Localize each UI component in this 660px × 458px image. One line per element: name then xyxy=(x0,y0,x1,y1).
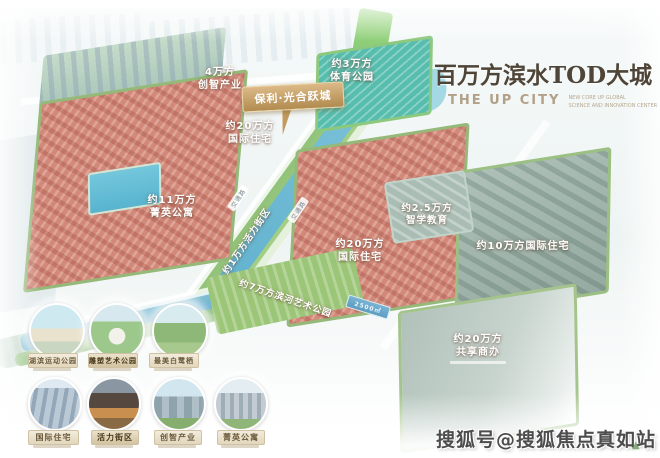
thumbnail-retail-street-render xyxy=(87,377,141,431)
label-line: 共享商办 xyxy=(450,346,506,359)
thumbnail-english-caption xyxy=(221,445,259,448)
thumbnail-label: 最美白鹭栖 xyxy=(149,353,199,368)
shared-office-english-caption xyxy=(450,361,506,364)
label-line: 约20万方 xyxy=(226,120,275,133)
thumbnail-english-caption xyxy=(33,445,71,448)
project-name-banner: 保利·光合跃城 xyxy=(241,81,344,112)
tagline-line: NEW CORE UP GLOBAL xyxy=(568,95,657,103)
thumbnail-label: 雕塑艺术公园 xyxy=(88,353,138,368)
tagline: NEW CORE UP GLOBAL SCIENCE AND INNOVATIO… xyxy=(568,93,657,110)
promo-masterplan-image: 4万方 创智产业 约3万方 体育公园 约20万方 国际住宅 约11万方 菁英公寓… xyxy=(0,0,660,458)
label-education: 约2.5万方 智学教育 xyxy=(401,203,452,228)
thumbnail-sculpture-park-photo xyxy=(89,303,145,359)
label-shared-office: 约20万方 共享商办 xyxy=(450,333,506,364)
thumbnail-apartment-render xyxy=(214,377,268,431)
label-innovation-industry: 4万方 创智产业 xyxy=(198,66,242,92)
label-line: 4万方 xyxy=(198,66,242,79)
label-elite-apartments: 约11万方 菁英公寓 xyxy=(148,194,197,220)
label-line: 约20万方 xyxy=(450,333,506,346)
label-line: 菁英公寓 xyxy=(148,207,197,220)
label-international-residence-center: 约20万方 国际住宅 xyxy=(336,238,385,264)
thumbnail-label: 创智产业 xyxy=(154,430,202,445)
thumbnail-industry-towers-render xyxy=(152,377,206,431)
label-line: 约3万方 xyxy=(330,58,374,71)
thumbnail-english-caption xyxy=(154,368,192,371)
label-sports-park: 约3万方 体育公园 xyxy=(330,58,374,84)
label-international-residence-east: 约10万方国际住宅 xyxy=(477,240,570,253)
thumbnail-label: 湖滨运动公园 xyxy=(28,353,78,368)
label-line: 国际住宅 xyxy=(226,133,275,146)
label-line: 约20万方 xyxy=(336,238,385,251)
thumbnail-label: 国际住宅 xyxy=(28,430,79,445)
main-title: 百万方滨水TOD大城 xyxy=(434,56,658,90)
label-line: 约2.5万方 xyxy=(401,203,452,215)
label-line: 国际住宅 xyxy=(336,251,385,264)
label-international-residence-west: 约20万方 国际住宅 xyxy=(226,120,275,146)
thumbnail-label: 活力街区 xyxy=(91,430,139,445)
label-line: 创智产业 xyxy=(198,79,242,92)
thumbnail-residence-render xyxy=(28,377,82,431)
sohu-watermark: 搜狐号@搜狐焦点真如站 xyxy=(436,425,656,452)
english-title: THE UP CITY xyxy=(448,93,560,108)
label-line: 约11万方 xyxy=(148,194,197,207)
thumbnail-english-caption xyxy=(95,445,133,448)
subtitle-row: THE UP CITY NEW CORE UP GLOBAL SCIENCE A… xyxy=(448,93,658,110)
zone-international-residence-west xyxy=(23,69,248,293)
tagline-line: SCIENCE AND INNOVATION CENTER xyxy=(568,103,657,111)
thumbnail-sports-park-photo xyxy=(29,303,85,359)
title-block: 百万方滨水TOD大城 THE UP CITY NEW CORE UP GLOBA… xyxy=(434,56,658,110)
label-line: 智学教育 xyxy=(401,215,452,227)
thumbnail-english-caption xyxy=(33,368,71,371)
thumbnail-english-caption xyxy=(93,368,131,371)
corner-logo-icon: ▲ xyxy=(632,440,640,451)
thumbnail-english-caption xyxy=(158,445,196,448)
thumbnail-label: 菁英公寓 xyxy=(217,430,265,445)
thumbnail-green-park-photo xyxy=(152,303,208,359)
